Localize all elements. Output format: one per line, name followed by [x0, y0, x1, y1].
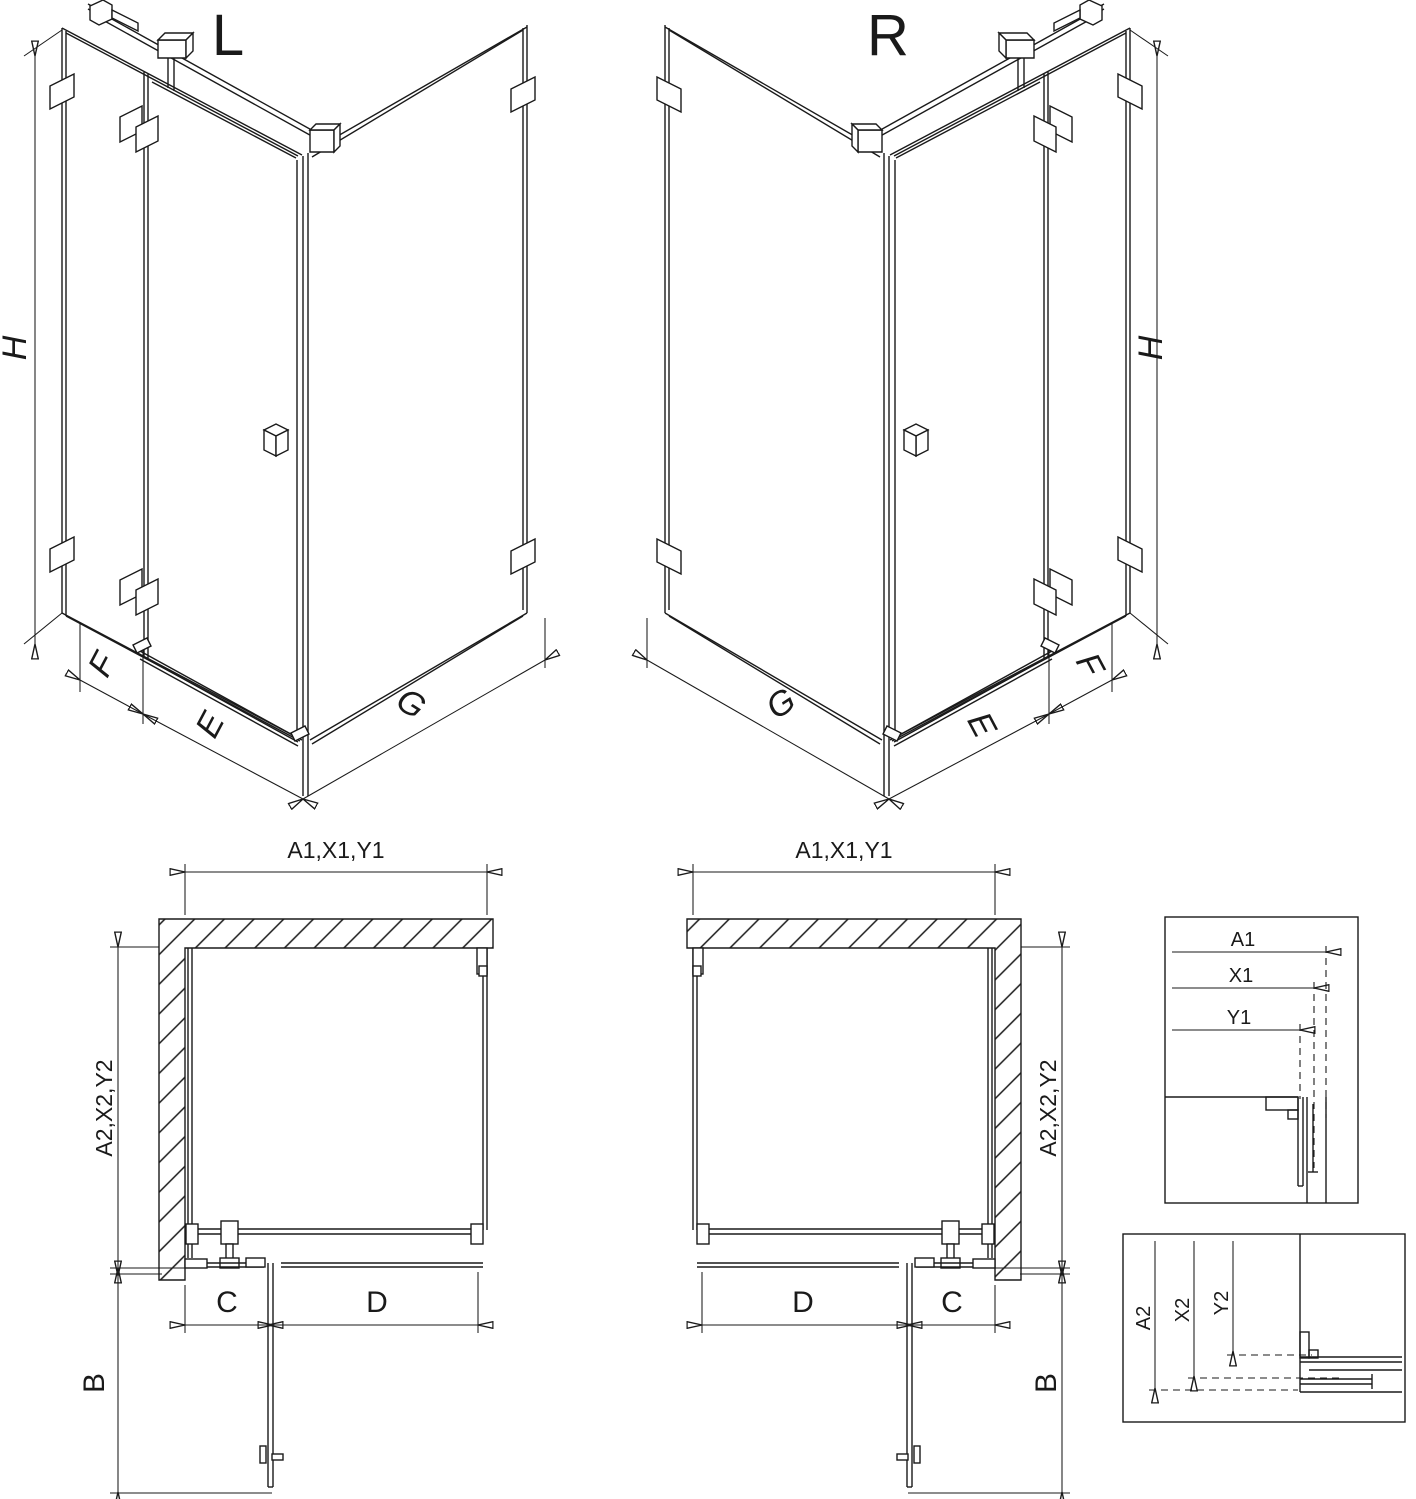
detail-label-x2: X2: [1172, 1298, 1194, 1322]
detail-label-y2: Y2: [1211, 1291, 1233, 1315]
dim-label-width-right-plan: A1,X1,Y1: [795, 837, 892, 863]
dim-label-door-right: E: [960, 706, 1004, 744]
detail-label-a2: A2: [1133, 1306, 1155, 1330]
dim-label-height-right: H: [1132, 335, 1170, 360]
dim-label-depth-right-plan: A2,X2,Y2: [1035, 1059, 1061, 1156]
dim-label-c-right-plan: C: [941, 1286, 963, 1319]
iso-view-right: R H F E G: [647, 0, 1170, 799]
detail-label-a1: A1: [1231, 929, 1255, 951]
dim-label-fixed-left: F: [81, 645, 125, 683]
dim-label-side-left: G: [390, 681, 433, 727]
dim-label-height-left: H: [0, 335, 34, 360]
dim-label-b-left-plan: B: [78, 1373, 111, 1393]
dim-label-side-right: G: [760, 681, 803, 727]
wall-section-left-plan: [159, 919, 493, 1280]
detail-width-measuring: A1 X1 Y1: [1165, 917, 1358, 1203]
technical-drawing-canvas: L H F E G R H F E G A1,X1,Y1 A2,X2,Y: [0, 0, 1416, 1499]
view-label-left: L: [212, 3, 244, 68]
plan-view-left: A1,X1,Y1 A2,X2,Y2 C D B: [78, 837, 493, 1493]
detail-label-y1: Y1: [1227, 1007, 1251, 1029]
dim-label-b-right-plan: B: [1030, 1373, 1063, 1393]
dim-label-d-left-plan: D: [366, 1286, 388, 1319]
detail-label-x1: X1: [1229, 965, 1253, 987]
dim-label-width-left-plan: A1,X1,Y1: [287, 837, 384, 863]
dim-label-door-left: E: [188, 706, 232, 744]
dim-label-fixed-right: F: [1068, 647, 1112, 685]
dim-label-d-right-plan: D: [792, 1286, 814, 1319]
shower-enclosure-diagram: L H F E G R H F E G A1,X1,Y1 A2,X2,Y: [0, 0, 1416, 1499]
plan-view-right: A1,X1,Y1 A2,X2,Y2 D C B: [687, 837, 1070, 1493]
dim-label-depth-left-plan: A2,X2,Y2: [91, 1059, 117, 1156]
view-label-right: R: [867, 3, 909, 68]
detail-depth-measuring: A2 X2 Y2: [1123, 1234, 1405, 1422]
wall-section-right-plan: [687, 919, 1021, 1280]
dim-label-c-left-plan: C: [216, 1286, 238, 1319]
iso-view-left: L H F E G: [0, 0, 545, 799]
